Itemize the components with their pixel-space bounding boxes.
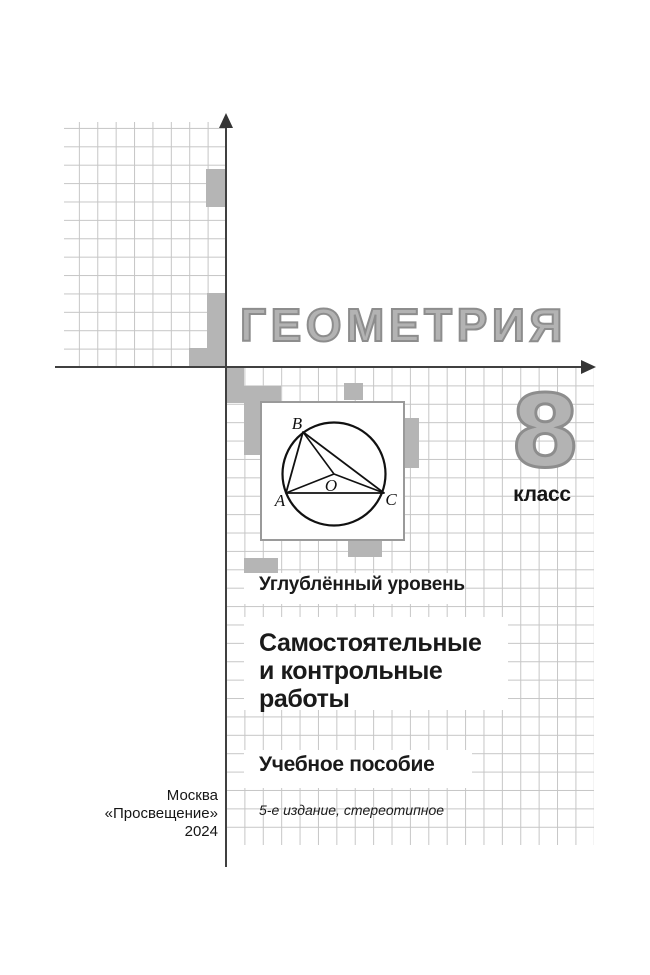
edition-note-text: 5-е издание, стереотипное [259, 802, 444, 818]
grid-cell-fill [348, 540, 382, 557]
grid-cell-fill [189, 348, 226, 366]
book-type-text: Учебное пособие [259, 753, 434, 777]
book-cover-page: ГЕОМЕТРИЯ 8 класс A B C O Углублённый ур… [0, 0, 650, 975]
geometry-figure: A B C O [260, 401, 405, 541]
grid-cell-fill [227, 368, 244, 386]
x-axis-line [55, 366, 583, 368]
y-axis-arrow-icon [219, 113, 233, 128]
page-title: ГЕОМЕТРИЯ [240, 302, 567, 348]
center-label-o: O [325, 476, 337, 495]
subtitle-block: Самостоятельные и контрольные работы [259, 629, 481, 713]
imprint-block: Москва «Просвещение» 2024 [60, 787, 218, 841]
grade-number: 8 [504, 382, 580, 482]
grade-label: класс [504, 483, 580, 507]
imprint-city: Москва [60, 787, 218, 805]
x-axis-arrow-icon [581, 360, 596, 374]
subtitle-line: и контрольные [259, 657, 481, 685]
imprint-publisher: «Просвещение» [60, 805, 218, 823]
circle-triangle-diagram: A B C O [262, 403, 403, 539]
vertex-label-a: A [274, 491, 286, 510]
y-axis-line [225, 126, 227, 867]
level-text: Углублённый уровень [259, 574, 465, 596]
grid-cell-fill [206, 169, 225, 207]
subtitle-line: Самостоятельные [259, 629, 481, 657]
vertex-label-c: C [385, 490, 397, 509]
grid-top-left [64, 122, 226, 367]
imprint-year: 2024 [60, 823, 218, 841]
grid-cell-fill [207, 293, 226, 348]
vertex-label-b: B [292, 414, 303, 433]
subtitle-line: работы [259, 685, 481, 713]
grid-cell-fill [344, 383, 363, 400]
